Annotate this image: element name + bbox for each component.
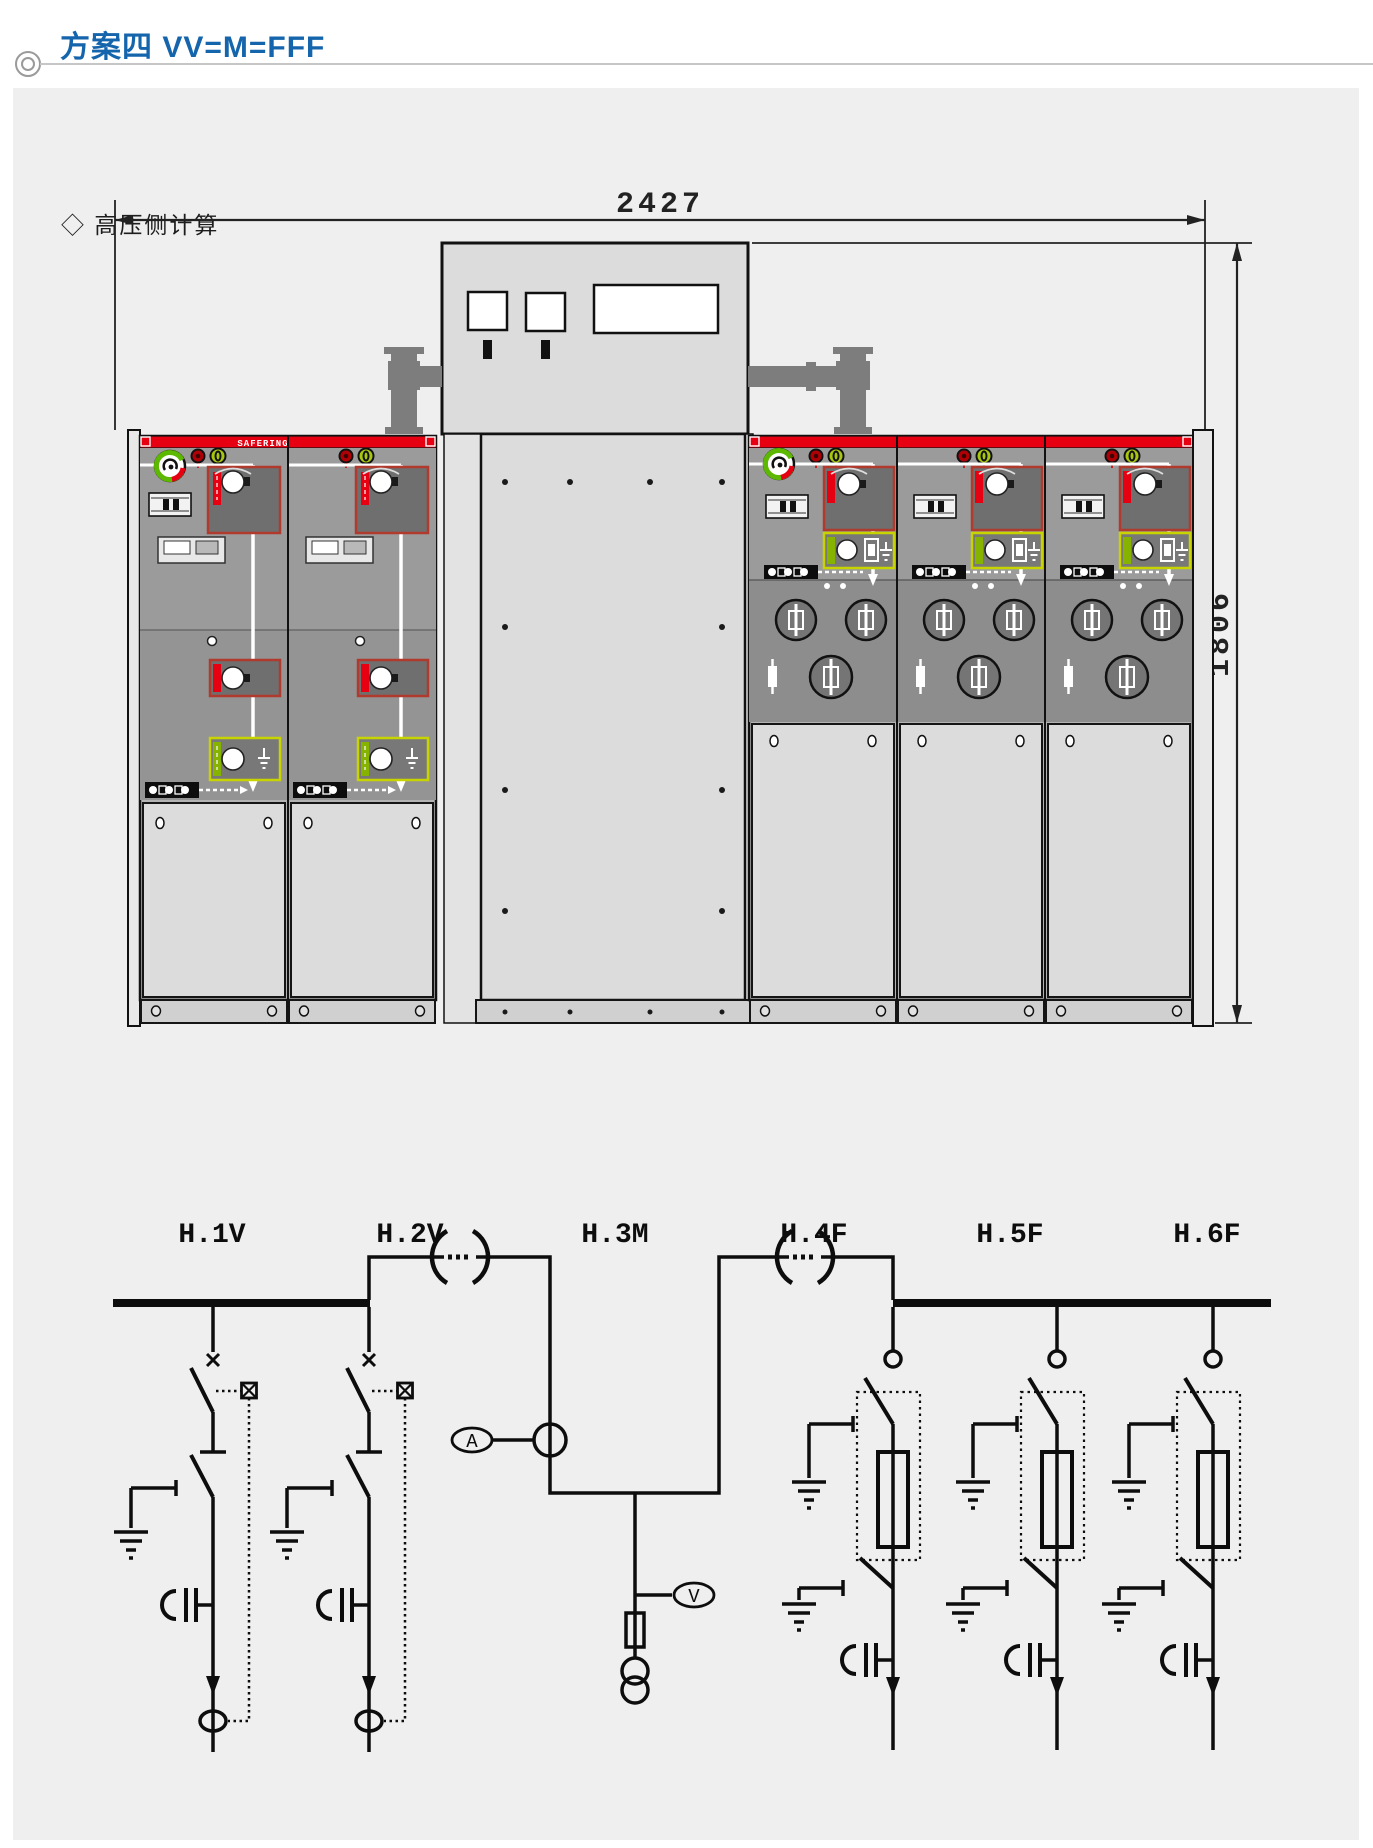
feeder-h2v <box>270 1307 413 1752</box>
safering-logo <box>155 451 185 481</box>
left-side-wall <box>128 430 140 1026</box>
elevation-view: 2427 1806 <box>115 188 1252 1026</box>
feeder-h5f <box>946 1307 1084 1750</box>
width-dimension-value: 2427 <box>616 188 704 222</box>
safering-band <box>749 436 1193 448</box>
voltage-transformer <box>622 1677 648 1703</box>
label-h5f: H.5F <box>976 1220 1043 1251</box>
meter-window <box>468 292 507 330</box>
cabinet-left: SAFERING <box>128 430 436 1026</box>
busbar-duct-right <box>748 347 873 434</box>
panel-front-h5f <box>897 448 1045 1023</box>
brand-label: SAFERING <box>237 439 288 449</box>
metering-top-box <box>442 243 748 434</box>
meter-window <box>526 293 565 331</box>
panel-front-h4f <box>749 448 897 1023</box>
feeder-h1v <box>114 1307 257 1752</box>
label-h6f: H.6F <box>1173 1220 1240 1251</box>
panel-front-h6f <box>1045 448 1193 1023</box>
cabinet-middle <box>444 434 753 1023</box>
meter-display-window <box>594 285 718 333</box>
metering-link <box>369 1231 893 1703</box>
panel-front-h1v <box>140 448 288 1023</box>
label-h3m: H.3M <box>581 1220 648 1251</box>
panel-front-h2v <box>288 448 436 1023</box>
metering-door <box>481 434 745 1000</box>
voltmeter-label: V <box>688 1586 700 1608</box>
feeder-h6f <box>1102 1307 1240 1750</box>
technical-drawing: 2427 1806 <box>0 0 1373 1848</box>
right-side-wall <box>1193 430 1213 1026</box>
feeder-h4f <box>782 1307 920 1750</box>
safering-logo <box>764 449 794 479</box>
busbar-duct-left <box>384 347 442 434</box>
label-h4f: H.4F <box>780 1220 847 1251</box>
ammeter-label: A <box>466 1431 478 1453</box>
cabinet-right <box>749 430 1213 1026</box>
mechanism-plate <box>149 493 191 516</box>
label-h1v: H.1V <box>178 1220 245 1251</box>
single-line-diagram: H.1V H.2V H.3M H.4F H.5F H.6F <box>113 1220 1271 1752</box>
page: 方案四 VV=M=FFF ◇ 高压侧计算 <box>0 0 1373 1848</box>
panel-labels: H.1V H.2V H.3M H.4F H.5F H.6F <box>178 1220 1240 1251</box>
